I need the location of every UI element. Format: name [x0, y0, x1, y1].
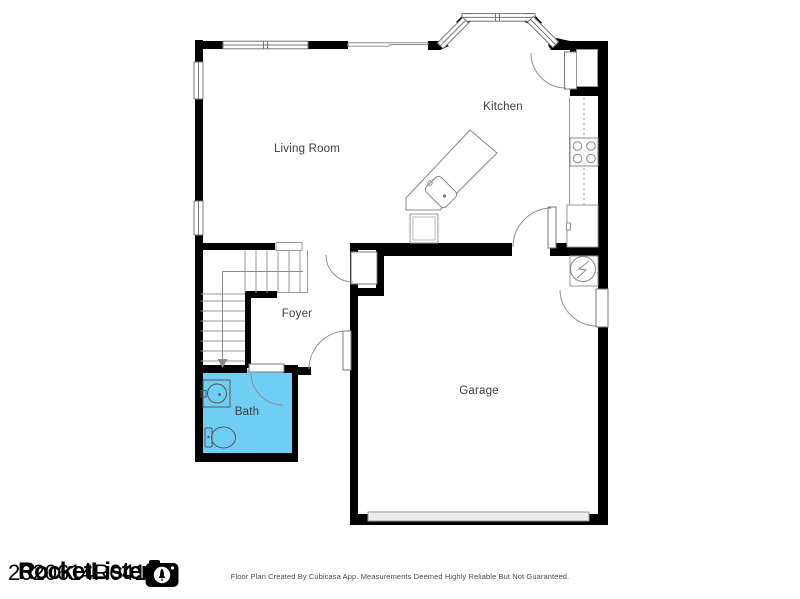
- pantry: [577, 50, 598, 87]
- garage-exterior-door-arc: [560, 290, 597, 326]
- kitchen-island: [406, 130, 497, 210]
- room-label-living-room: Living Room: [274, 143, 340, 155]
- room-label-foyer: Foyer: [282, 308, 312, 320]
- bay-window: [437, 14, 558, 49]
- garage-door: [368, 512, 589, 521]
- front-door-leaf: [343, 331, 351, 370]
- front-door-arc: [309, 331, 347, 369]
- wall-opening: [348, 41, 428, 49]
- island-cabinet: [410, 214, 438, 243]
- foyer-garage-door-leaf: [351, 252, 377, 284]
- window-top: [223, 41, 308, 49]
- floor-plan-page: Living Room Kitchen Foyer Bath Garage 20…: [0, 0, 800, 599]
- stove-icon: [570, 138, 598, 166]
- foyer-garage-door-arc: [326, 255, 353, 282]
- bath-door-leaf: [249, 364, 284, 372]
- kitchen-fixtures: [406, 98, 598, 247]
- room-label-bath: Bath: [235, 406, 259, 418]
- base-cabinet: [567, 205, 599, 247]
- kitchen-garage-door-arc: [513, 208, 551, 247]
- room-label-garage: Garage: [459, 385, 499, 397]
- garage-exterior-door-leaf: [596, 289, 608, 327]
- disclaimer-text: Floor Plan Created By Cubicasa App. Meas…: [0, 572, 800, 581]
- pantry-door-leaf: [565, 52, 577, 89]
- window-left-lower: [194, 201, 203, 235]
- pantry-door-arc: [531, 53, 566, 88]
- room-label-kitchen: Kitchen: [483, 101, 523, 113]
- electrical-panel-icon: [570, 256, 598, 286]
- kitchen-garage-door-leaf: [548, 207, 556, 248]
- window-left-upper: [194, 62, 203, 99]
- stair-landing: [276, 243, 302, 251]
- floor-plan-drawing: [0, 0, 800, 599]
- stairs: [201, 243, 308, 369]
